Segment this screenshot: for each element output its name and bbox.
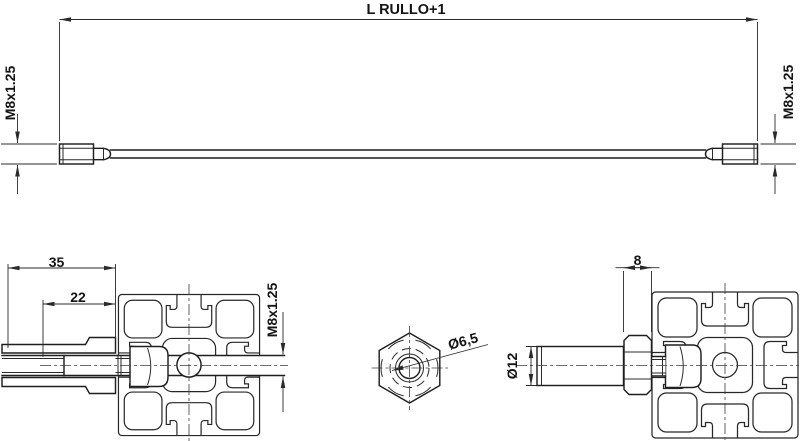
rod-right-thread-end	[706, 144, 758, 164]
left-mount-section-view	[2, 264, 288, 441]
dim-label-35: 35	[49, 254, 65, 270]
dim-label-thread-left-section: M8x1.25	[264, 283, 280, 337]
rod-left-thread-end	[60, 144, 111, 164]
hex-nut-front	[624, 336, 652, 395]
rod-side-view	[1, 20, 796, 195]
dim-label-22: 22	[70, 289, 86, 305]
right-mount-view	[516, 268, 799, 441]
dim-label-thread-top-left: M8x1.25	[2, 65, 18, 119]
dim-label-8: 8	[634, 252, 642, 268]
dim-label-pin-diameter: Ø12	[504, 353, 520, 379]
drawing-linework	[0, 0, 800, 441]
pin-cylinder	[537, 347, 624, 386]
dim-label-thread-top-right: M8x1.25	[780, 64, 796, 118]
dim-label-rod-length: L RULLO+1	[366, 2, 445, 18]
technical-drawing-canvas: L RULLO+1 M8x1.25 M8x1.25 35 22 M8x1.25 …	[0, 0, 800, 441]
